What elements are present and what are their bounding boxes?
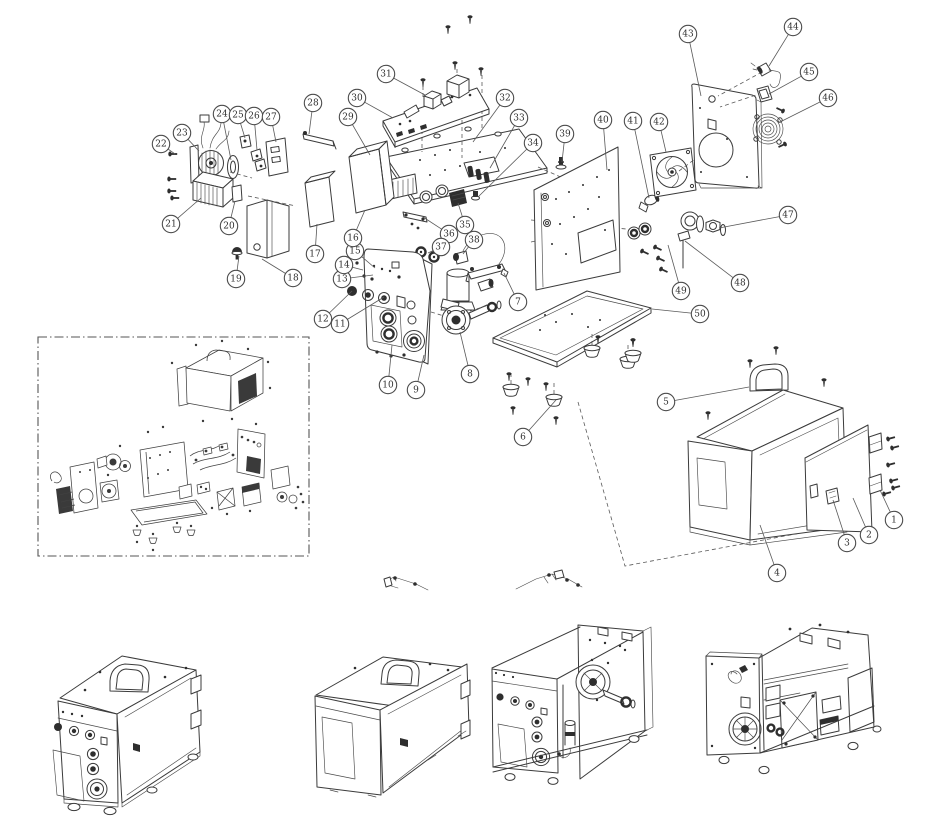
callout-number: 6 (520, 433, 526, 443)
callout-number: 26 (248, 112, 260, 122)
callout-number: 22 (155, 140, 166, 150)
callout-number: 5 (663, 398, 669, 408)
callout-number: 11 (334, 320, 345, 330)
callout-6: 6 (514, 400, 556, 446)
callout-number: 13 (336, 275, 348, 285)
callout-leader-line (668, 245, 679, 283)
callout-47: 47 (719, 206, 797, 228)
callout-17: 17 (306, 224, 323, 263)
callout-number: 2 (866, 531, 872, 541)
callout-number: 24 (216, 110, 228, 120)
callout-leader-line (652, 309, 691, 313)
callout-leader-line (273, 126, 276, 143)
callout-8: 8 (460, 332, 479, 383)
callout-leader-line (562, 143, 564, 162)
callout-27: 27 (262, 108, 279, 142)
output-connector (628, 212, 726, 268)
callout-leader-line (309, 112, 312, 134)
callout-21: 21 (162, 198, 201, 233)
callout-leader-line (394, 78, 425, 95)
callout-number: 10 (382, 381, 394, 391)
callout-number: 20 (223, 222, 235, 232)
callout-number: 4 (774, 569, 780, 579)
callout-number: 43 (682, 30, 694, 40)
callout-number: 14 (338, 261, 350, 271)
callout-number: 16 (347, 234, 359, 244)
callout-number: 39 (559, 130, 571, 140)
manual-page: 1234567891011121314151617181920212223242… (0, 0, 945, 839)
callout-number: 15 (349, 247, 361, 257)
callout-number: 32 (499, 94, 510, 104)
callout-number: 42 (653, 118, 664, 128)
callout-number: 35 (459, 221, 471, 231)
callout-leader-line (255, 125, 257, 150)
callout-25: 25 (229, 106, 246, 138)
callout-leader-line (231, 201, 235, 218)
callout-44: 44 (769, 18, 802, 66)
callout-number: 3 (844, 539, 850, 549)
callout-number: 40 (597, 116, 609, 126)
mid-panel (531, 147, 669, 290)
callout-leader-line (504, 273, 514, 294)
callout-number: 12 (317, 315, 328, 325)
callout-number: 45 (803, 68, 815, 78)
callout-leader-line (329, 291, 352, 313)
callout-number: 17 (309, 250, 321, 260)
cable-clamp-right (516, 570, 582, 589)
callout-49: 49 (668, 245, 690, 300)
assembled-view-internal-rear (706, 624, 881, 774)
callout-number: 31 (380, 70, 391, 80)
exploded-diagram-canvas: 1234567891011121314151617181920212223242… (0, 0, 945, 839)
callout-number: 27 (265, 113, 277, 123)
callout-number: 21 (165, 220, 176, 230)
callout-number: 46 (822, 94, 834, 104)
rear-panel (692, 63, 788, 188)
wire-drive-cluster (167, 115, 336, 260)
callout-leader-line (423, 217, 442, 229)
exploded-view (167, 15, 900, 590)
front-panel (347, 249, 432, 364)
callout-number: 33 (513, 114, 525, 124)
callout-18: 18 (262, 259, 302, 287)
callout-leader-line (675, 387, 749, 401)
callout-number: 23 (176, 129, 188, 139)
callout-45: 45 (769, 63, 818, 94)
assembled-view-cover-only (315, 657, 470, 797)
callout-leader-line (769, 76, 801, 94)
callout-41: 41 (624, 112, 649, 198)
callout-leader-line (262, 259, 286, 274)
callout-leader-line (661, 131, 666, 153)
callout-number: 30 (351, 94, 363, 104)
callout-leader-line (529, 400, 556, 431)
callout-22: 22 (152, 135, 175, 154)
callout-number: 8 (467, 370, 473, 380)
callout-48: 48 (685, 241, 749, 292)
callout-46: 46 (778, 89, 837, 123)
callout-31: 31 (377, 65, 425, 95)
callout-leader-line (316, 224, 317, 245)
callout-leader-line (224, 123, 231, 161)
callout-leader-line (719, 217, 780, 228)
callout-28: 28 (304, 94, 321, 134)
callout-number: 1 (891, 516, 897, 526)
callout-7: 7 (504, 273, 527, 311)
callout-leader-line (458, 203, 462, 217)
callout-number: 19 (230, 275, 242, 285)
callout-number: 34 (527, 139, 539, 149)
callout-leader-line (460, 332, 468, 366)
callout-leader-line (241, 123, 246, 138)
callout-number: 38 (468, 236, 480, 246)
case-cover (578, 338, 847, 566)
callout-leader-line (352, 267, 363, 270)
callout-leader-line (178, 198, 201, 218)
callout-38: 38 (463, 231, 483, 254)
inset-overview (38, 337, 309, 556)
heatsink-small (305, 171, 335, 227)
callout-number: 41 (627, 117, 638, 127)
callout-number: 28 (307, 99, 319, 109)
callout-number: 49 (675, 287, 687, 297)
callout-leader-line (769, 34, 788, 66)
callout-number: 25 (232, 111, 244, 121)
fan-guard (753, 106, 788, 150)
callout-5: 5 (657, 387, 749, 411)
callout-number: 44 (787, 23, 799, 33)
door-latch (826, 488, 839, 504)
callout-number: 48 (734, 279, 746, 289)
wire-feeder (431, 264, 508, 334)
callout-leader-line (778, 102, 820, 123)
callout-number: 29 (342, 113, 354, 123)
callout-leader-line (685, 241, 733, 278)
callout-19: 19 (227, 256, 244, 288)
callout-leader-line (635, 130, 649, 199)
assembled-view-internal-front (492, 625, 653, 784)
callout-23: 23 (173, 124, 199, 151)
callout-number: 7 (515, 298, 521, 308)
callout-number: 37 (435, 243, 447, 253)
callout-number: 47 (782, 211, 794, 221)
callout-number: 50 (694, 310, 706, 320)
callout-35: 35 (456, 203, 473, 234)
callout-number: 18 (287, 274, 299, 284)
callout-39: 39 (556, 125, 573, 162)
callout-16: 16 (344, 210, 365, 247)
callout-42: 42 (650, 113, 667, 152)
callout-number: 9 (413, 386, 419, 396)
assembled-view-complete (53, 656, 201, 815)
callout-number: 36 (443, 230, 455, 240)
callout-50: 50 (652, 305, 709, 322)
callout-leader-line (365, 102, 393, 118)
heatsink-large (349, 141, 394, 213)
cable-clamp-left (384, 576, 428, 590)
